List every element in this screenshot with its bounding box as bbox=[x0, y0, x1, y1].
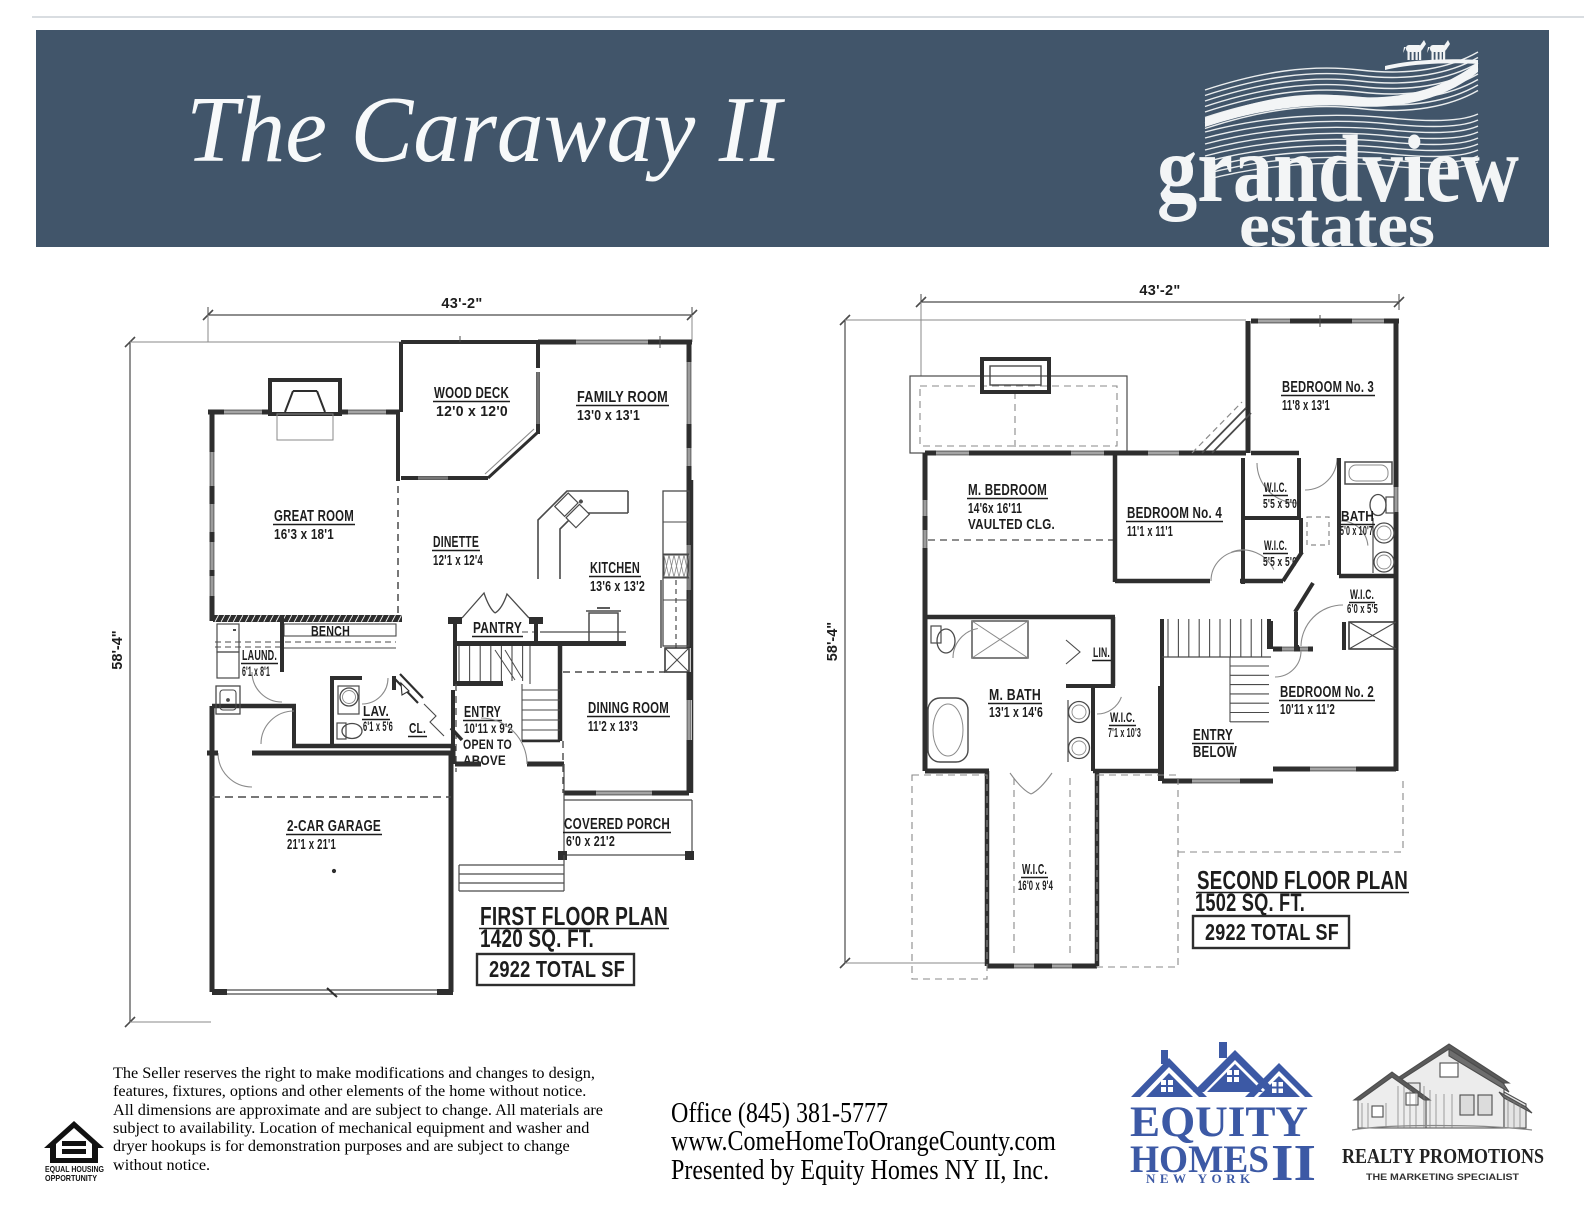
svg-text:2922 TOTAL SF: 2922 TOTAL SF bbox=[1205, 919, 1339, 945]
svg-text:BEDROOM No. 3: BEDROOM No. 3 bbox=[1282, 379, 1374, 396]
svg-text:KITCHEN: KITCHEN bbox=[590, 560, 640, 577]
svg-text:WOOD DECK: WOOD DECK bbox=[434, 385, 509, 402]
svg-text:16'0 x 9'4: 16'0 x 9'4 bbox=[1018, 877, 1053, 893]
svg-text:5'5 x 5'0: 5'5 x 5'0 bbox=[1263, 496, 1297, 511]
svg-text:W.I.C.: W.I.C. bbox=[1350, 586, 1374, 602]
svg-text:PANTRY: PANTRY bbox=[473, 620, 522, 637]
svg-text:13'1 x 14'6: 13'1 x 14'6 bbox=[989, 705, 1043, 721]
svg-text:BENCH: BENCH bbox=[311, 623, 350, 640]
svg-text:BATH: BATH bbox=[1341, 508, 1374, 525]
svg-text:6'1 x 8'1: 6'1 x 8'1 bbox=[242, 664, 270, 679]
svg-text:58'-4": 58'-4" bbox=[110, 630, 126, 669]
svg-text:6'1 x 5'6: 6'1 x 5'6 bbox=[363, 719, 393, 734]
svg-text:CL.: CL. bbox=[409, 720, 426, 737]
svg-text:12'1 x 12'4: 12'1 x 12'4 bbox=[433, 552, 483, 569]
svg-text:43'-2": 43'-2" bbox=[441, 296, 482, 312]
svg-text:W.I.C.: W.I.C. bbox=[1022, 861, 1047, 878]
svg-text:COVERED PORCH: COVERED PORCH bbox=[564, 816, 670, 833]
svg-text:NEW YORK: NEW YORK bbox=[1146, 1171, 1255, 1186]
svg-text:13'0 x 13'1: 13'0 x 13'1 bbox=[577, 407, 640, 424]
svg-text:OPPORTUNITY: OPPORTUNITY bbox=[45, 1173, 97, 1183]
svg-text:W.I.C.: W.I.C. bbox=[1110, 709, 1135, 725]
svg-text:6'0 x 21'2: 6'0 x 21'2 bbox=[566, 834, 615, 850]
svg-text:LAV.: LAV. bbox=[363, 703, 389, 720]
svg-text:5'0 x 10'7: 5'0 x 10'7 bbox=[1340, 524, 1373, 538]
svg-text:16'3 x 18'1: 16'3 x 18'1 bbox=[274, 526, 334, 543]
svg-text:BEDROOM No. 2: BEDROOM No. 2 bbox=[1280, 684, 1374, 701]
svg-text:W.I.C.: W.I.C. bbox=[1264, 479, 1287, 495]
svg-text:6'0 x 5'5: 6'0 x 5'5 bbox=[1347, 601, 1378, 616]
svg-text:14'6x 16'11: 14'6x 16'11 bbox=[968, 500, 1022, 517]
svg-text:1502 SQ. FT.: 1502 SQ. FT. bbox=[1195, 889, 1305, 917]
svg-text:M. BATH: M. BATH bbox=[989, 687, 1041, 704]
svg-text:LAUND.: LAUND. bbox=[242, 647, 277, 664]
svg-text:DINETTE: DINETTE bbox=[433, 534, 479, 551]
svg-text:VAULTED CLG.: VAULTED CLG. bbox=[968, 516, 1055, 533]
svg-text:BEDROOM No. 4: BEDROOM No. 4 bbox=[1127, 505, 1222, 522]
svg-text:58'-4": 58'-4" bbox=[825, 622, 841, 661]
svg-text:ENTRY: ENTRY bbox=[1193, 727, 1233, 744]
svg-text:12'0 x 12'0: 12'0 x 12'0 bbox=[436, 403, 508, 420]
svg-text:W.I.C.: W.I.C. bbox=[1264, 537, 1287, 553]
svg-text:10'11 x 9'2: 10'11 x 9'2 bbox=[464, 720, 513, 736]
svg-text:2-CAR GARAGE: 2-CAR GARAGE bbox=[287, 818, 381, 835]
svg-text:FAMILY ROOM: FAMILY ROOM bbox=[577, 389, 668, 406]
svg-text:estates: estates bbox=[1239, 192, 1435, 260]
svg-text:11'8 x 13'1: 11'8 x 13'1 bbox=[1282, 397, 1330, 414]
svg-text:DINING ROOM: DINING ROOM bbox=[588, 700, 669, 717]
svg-text:GREAT ROOM: GREAT ROOM bbox=[274, 508, 354, 525]
svg-text:THE MARKETING SPECIALIST: THE MARKETING SPECIALIST bbox=[1366, 1172, 1519, 1183]
svg-text:1420 SQ. FT.: 1420 SQ. FT. bbox=[480, 925, 594, 953]
svg-text:21'1 x 21'1: 21'1 x 21'1 bbox=[287, 836, 336, 853]
svg-text:2922 TOTAL SF: 2922 TOTAL SF bbox=[489, 956, 625, 982]
svg-text:11'1 x 11'1: 11'1 x 11'1 bbox=[1127, 523, 1173, 540]
svg-text:13'6 x 13'2: 13'6 x 13'2 bbox=[590, 578, 645, 595]
svg-text:OPEN TO: OPEN TO bbox=[463, 736, 512, 752]
svg-text:43'-2": 43'-2" bbox=[1139, 283, 1180, 299]
svg-text:11'2 x 13'3: 11'2 x 13'3 bbox=[588, 718, 638, 735]
svg-text:BELOW: BELOW bbox=[1193, 744, 1237, 761]
svg-text:M. BEDROOM: M. BEDROOM bbox=[968, 482, 1047, 499]
svg-text:II: II bbox=[1271, 1135, 1316, 1192]
svg-text:LIN.: LIN. bbox=[1093, 645, 1110, 660]
svg-text:7'1 x 10'3: 7'1 x 10'3 bbox=[1108, 725, 1141, 740]
svg-text:10'11 x 11'2: 10'11 x 11'2 bbox=[1280, 702, 1335, 718]
svg-text:REALTY PROMOTIONS: REALTY PROMOTIONS bbox=[1342, 1144, 1544, 1168]
